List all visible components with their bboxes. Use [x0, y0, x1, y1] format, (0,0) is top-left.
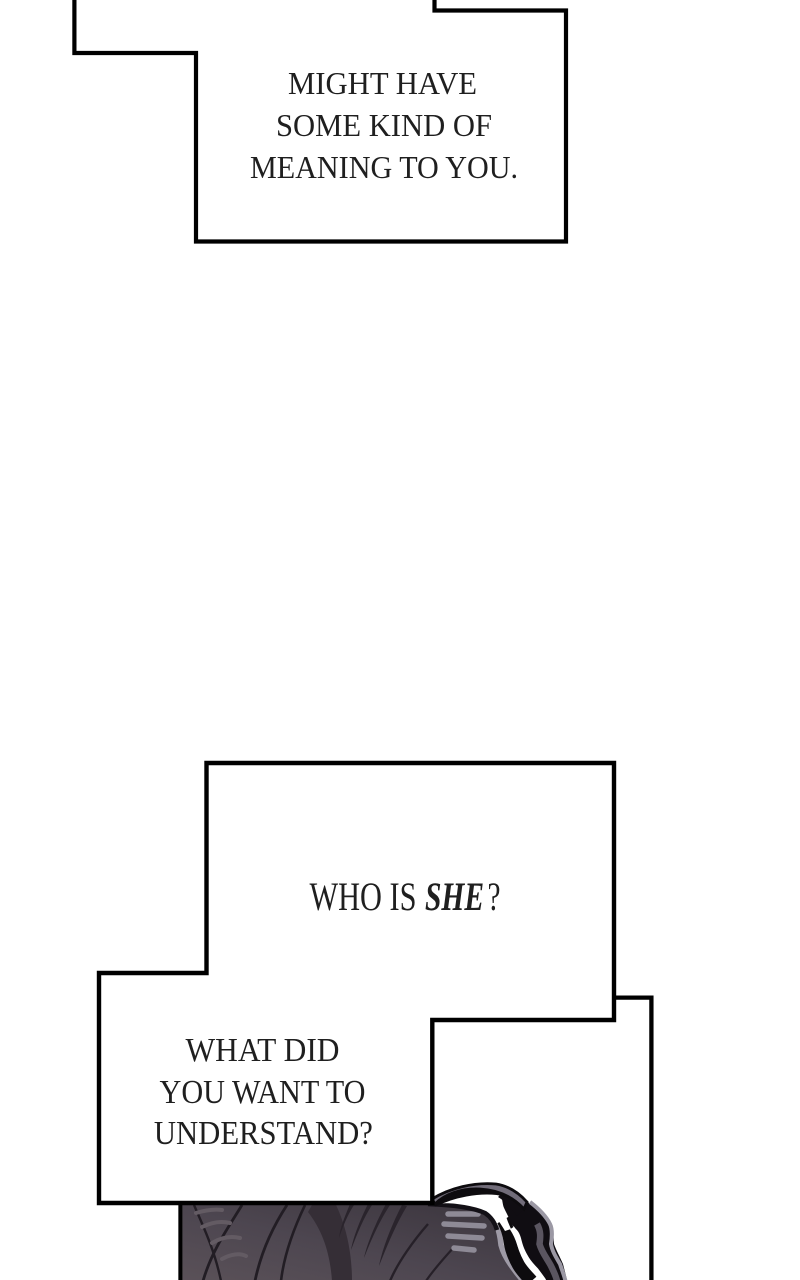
svg-text:YOU WANT TO: YOU WANT TO [160, 1074, 366, 1111]
svg-text:WHAT DID: WHAT DID [186, 1032, 340, 1069]
svg-text:SOME KIND OF: SOME KIND OF [276, 107, 492, 143]
svg-text:WHO IS: WHO IS [310, 874, 417, 919]
svg-text:?: ? [488, 874, 501, 919]
svg-text:MIGHT HAVE: MIGHT HAVE [288, 65, 477, 101]
svg-text:UNDERSTAND?: UNDERSTAND? [154, 1115, 373, 1152]
svg-text:SHE: SHE [425, 874, 484, 919]
svg-text:MEANING TO YOU.: MEANING TO YOU. [250, 149, 518, 185]
